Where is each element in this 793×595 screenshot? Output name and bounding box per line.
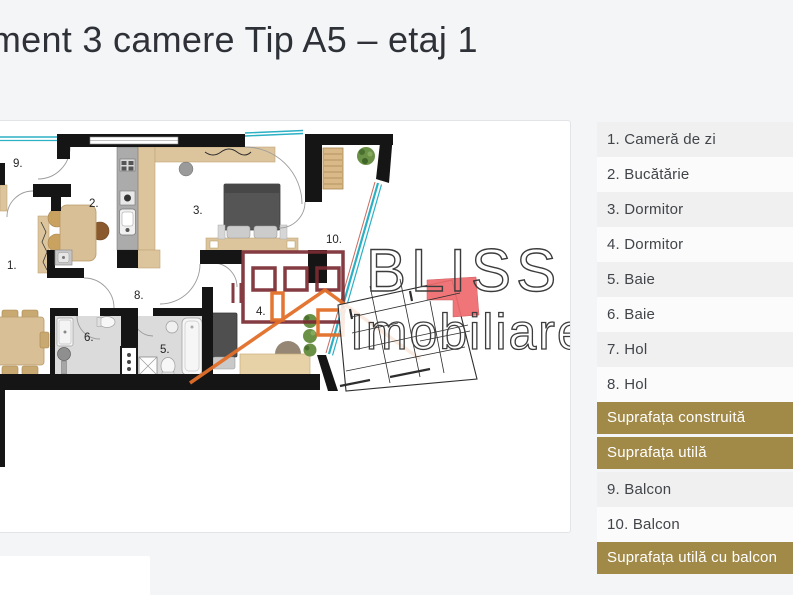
page-title-text: Apartament 3 camere Tip A5 – etaj 1 [0, 14, 600, 66]
label-kitchen: 2. [89, 198, 99, 210]
legend-row-summary: Suprafața utilă [597, 437, 793, 472]
legend-row: 6. Baie [597, 297, 793, 332]
legend-row: 1. Cameră de zi [597, 122, 793, 157]
balcony10-plant [357, 147, 375, 165]
label-balcony9: 9. [13, 158, 23, 170]
label-balcony10: 10. [326, 234, 342, 246]
legend-row: 4. Dormitor [597, 227, 793, 262]
wall-fixture [55, 250, 72, 265]
label-hall8: 8. [134, 290, 144, 302]
legend-row: 7. Hol [597, 332, 793, 367]
label-bedroom3: 3. [193, 205, 203, 217]
legend-row: 3. Dormitor [597, 192, 793, 227]
bedroom3-bed [218, 184, 287, 239]
utility-shaft [121, 347, 137, 378]
living-room-table [0, 310, 49, 375]
label-bath5: 5. [160, 344, 170, 356]
legend-row-summary: Suprafața utilă cu balcon [597, 542, 793, 577]
kitchen-appliance-strip [117, 147, 138, 250]
balcony10-bench [323, 148, 343, 189]
window-slit [90, 137, 178, 144]
legend-row: 2. Bucătărie [597, 157, 793, 192]
legend-row: 5. Baie [597, 262, 793, 297]
legend-row-summary: Suprafața construită [597, 402, 793, 437]
floor-plan-image[interactable]: BLISS Imobiliare 1. 2. 3. 4. 5. 6. 8. 9.… [0, 121, 570, 532]
legend-row: 8. Hol [597, 367, 793, 402]
pouf [179, 162, 193, 176]
legend-row: 10. Balcon [597, 507, 793, 542]
label-living: 1. [7, 260, 17, 272]
room-legend-list: 1. Cameră de zi 2. Bucătărie 3. Dormitor… [597, 122, 793, 577]
watermark-brand-top: BLISS [366, 237, 561, 304]
watermark-brand-bottom: Imobiliare [350, 304, 570, 360]
legend-row: 9. Balcon [597, 472, 793, 507]
label-bedroom4: 4. [256, 306, 266, 318]
next-section-card [0, 556, 150, 595]
label-bath6: 6. [84, 332, 94, 344]
page-title: Apartament 3 camere Tip A5 – etaj 1 [0, 14, 600, 74]
